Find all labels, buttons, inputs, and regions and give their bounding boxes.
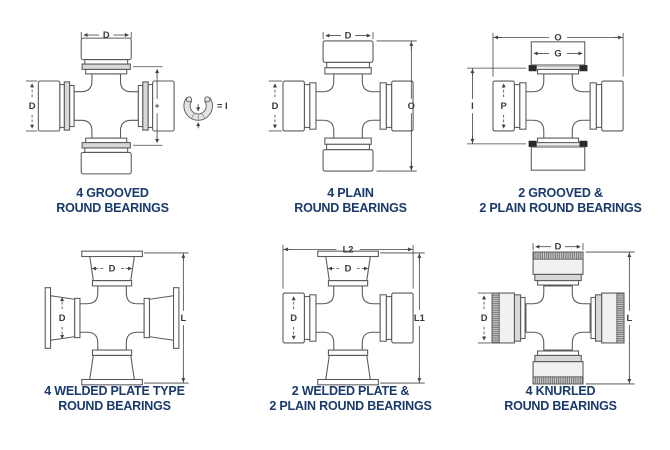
dim-label-cap-left: D [290,313,297,323]
dim-label-left: D [272,101,279,111]
caption-line: ROUND BEARINGS [238,201,463,216]
dim-label-right: O [408,101,415,111]
joint-drawing [493,42,623,170]
caption-line: ROUND BEARINGS [448,399,670,414]
dim-label-top: D [555,242,562,252]
diagram-2-grooved-2-plain-round-bearings: O G I P [460,30,665,182]
dim-label-top: D [345,31,352,41]
diagram-4-grooved-round-bearings: D D + = I [8,30,233,182]
dim-label-top: O [554,32,561,42]
caption-line: 4 PLAIN [238,186,463,201]
diagram-4-welded-plate-type-round-bearings: D D L [14,242,219,394]
dim-label-left: I [471,101,474,111]
joint-drawing [283,41,413,171]
caption-line: 2 WELDED PLATE & [238,384,463,399]
dim-label-left: D [29,101,36,111]
u-joint-bearing-styles-figure: D D + = I [0,0,670,450]
caption-4-welded-plate-type-round-bearings: 4 WELDED PLATE TYPE ROUND BEARINGS [2,384,227,414]
caption-line: 2 PLAIN ROUND BEARINGS [238,399,463,414]
diagram-2-welded-plate-2-plain-round-bearings: L2 D D L1 [250,242,455,394]
dim-label-cap-left: P [501,101,507,111]
caption-4-grooved-round-bearings: 4 GROOVED ROUND BEARINGS [0,186,225,216]
dim-label-right: L [626,313,632,323]
dim-label-cap-top: D [109,264,116,274]
dim-label-plus: + [155,102,160,111]
dim-label-right: L [180,313,186,323]
snap-ring-icon [184,97,213,129]
diagram-4-knurled-round-bearings: D D L [460,242,665,394]
caption-4-knurled-round-bearings: 4 KNURLED ROUND BEARINGS [448,384,670,414]
dim-label-left: D [481,313,488,323]
caption-line: 4 KNURLED [448,384,670,399]
caption-line: 2 GROOVED & [448,186,670,201]
joint-drawing [492,252,624,384]
caption-line: 2 PLAIN ROUND BEARINGS [448,201,670,216]
dim-label-right: L1 [414,313,425,323]
joint-drawing [38,38,174,174]
caption-line: 4 WELDED PLATE TYPE [2,384,227,399]
caption-4-plain-round-bearings: 4 PLAIN ROUND BEARINGS [238,186,463,216]
dim-label-cap-left: D [59,313,66,323]
dim-label-cap-top: D [345,264,352,274]
diagram-4-plain-round-bearings: D D O [250,30,455,182]
caption-2-grooved-2-plain-round-bearings: 2 GROOVED & 2 PLAIN ROUND BEARINGS [448,186,670,216]
caption-2-welded-plate-2-plain-round-bearings: 2 WELDED PLATE & 2 PLAIN ROUND BEARINGS [238,384,463,414]
dim-label-top: L2 [343,244,354,254]
dim-label-cap-top: G [554,48,561,58]
caption-line: ROUND BEARINGS [0,201,225,216]
caption-line: ROUND BEARINGS [2,399,227,414]
dim-label-top: D [103,30,110,40]
caption-line: 4 GROOVED [0,186,225,201]
dim-label-equals-i: = I [217,101,228,111]
